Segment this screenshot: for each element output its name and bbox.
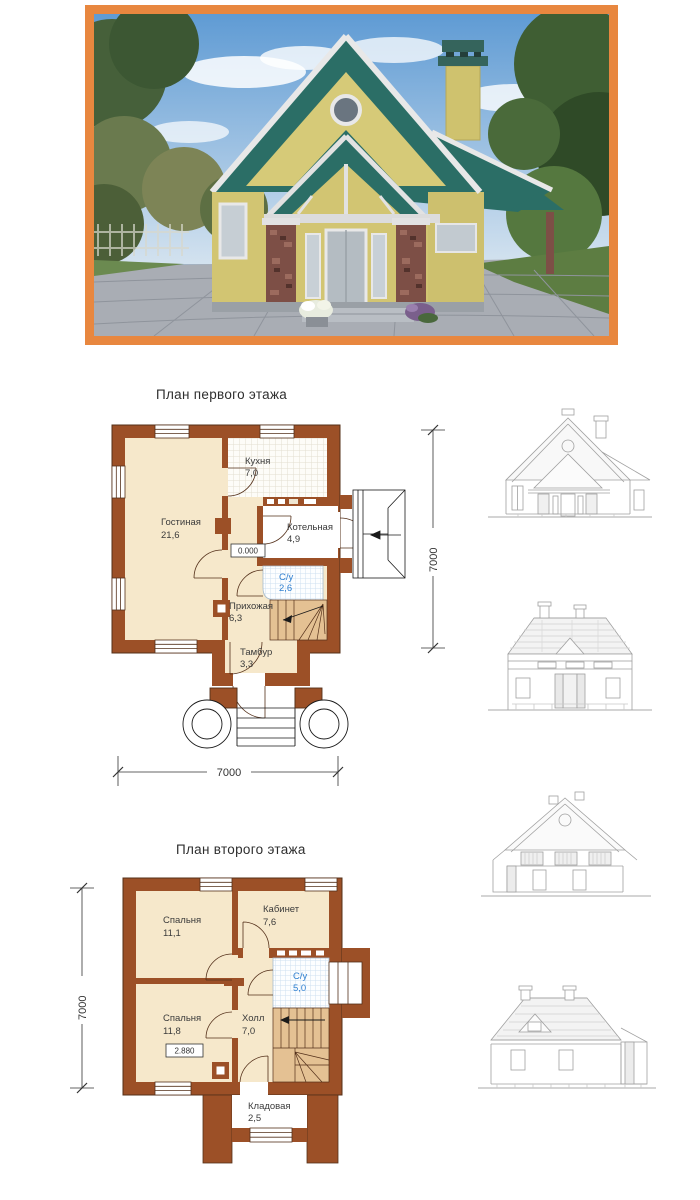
dimension-label: 7000 bbox=[217, 767, 241, 779]
room-area: 7,0 bbox=[242, 1026, 255, 1037]
front-porch bbox=[183, 688, 348, 748]
room-area: 4,9 bbox=[287, 534, 300, 545]
dimension-label: 7000 bbox=[77, 996, 89, 1020]
room-name: Спальня bbox=[163, 1013, 201, 1024]
level-mark: 2.880 bbox=[174, 1047, 195, 1056]
room-name: Спальня bbox=[163, 915, 201, 926]
room-name: Кухня bbox=[245, 456, 270, 467]
room-area: 3,3 bbox=[240, 659, 253, 670]
room-name: Котельная bbox=[287, 522, 333, 533]
room-area: 11,1 bbox=[163, 928, 181, 939]
room-area: 7,6 bbox=[263, 917, 276, 928]
second-floor-plan: Спальня 11,1 Кабинет 7,6 С/у 5,0 Спальня… bbox=[60, 860, 400, 1200]
room-area: 7,0 bbox=[245, 468, 258, 479]
side-entry-steps bbox=[353, 490, 405, 578]
room-area: 21,6 bbox=[161, 530, 180, 541]
elevation-side-right bbox=[475, 984, 660, 1102]
house-photo bbox=[85, 5, 618, 345]
room-name: Кабинет bbox=[263, 904, 300, 915]
room-area: 2,6 bbox=[279, 583, 292, 594]
level-mark: 0.000 bbox=[238, 547, 259, 556]
stairs bbox=[270, 600, 327, 640]
elevation-rear bbox=[482, 594, 657, 726]
room-name: С/у bbox=[279, 572, 294, 583]
dimensions bbox=[70, 883, 94, 1093]
second-floor-title: План второго этажа bbox=[176, 842, 306, 857]
room-name: Гостиная bbox=[161, 517, 201, 528]
dimension-label: 7000 bbox=[428, 548, 440, 572]
room-name: Прихожая bbox=[229, 601, 273, 612]
room-name: Тамбур bbox=[240, 647, 272, 658]
first-floor-title: План первого этажа bbox=[156, 387, 287, 402]
room-name: Кладовая bbox=[248, 1101, 291, 1112]
room-name: С/у bbox=[293, 971, 308, 982]
page: План первого этажа План второго этажа bbox=[0, 0, 700, 1200]
elevation-side-left bbox=[477, 790, 655, 908]
first-floor-plan: Гостиная 21,6 Кухня 7,0 Котельная 4,9 С/… bbox=[95, 408, 455, 808]
room-name: Холл bbox=[242, 1013, 264, 1024]
room-area: 5,0 bbox=[293, 983, 306, 994]
elevation-front bbox=[482, 404, 657, 534]
room-area: 6,3 bbox=[229, 613, 242, 624]
house-photo-art bbox=[94, 14, 609, 336]
room-area: 2,5 bbox=[248, 1113, 261, 1124]
room-area: 11,8 bbox=[163, 1026, 181, 1037]
stairs bbox=[273, 1008, 329, 1082]
